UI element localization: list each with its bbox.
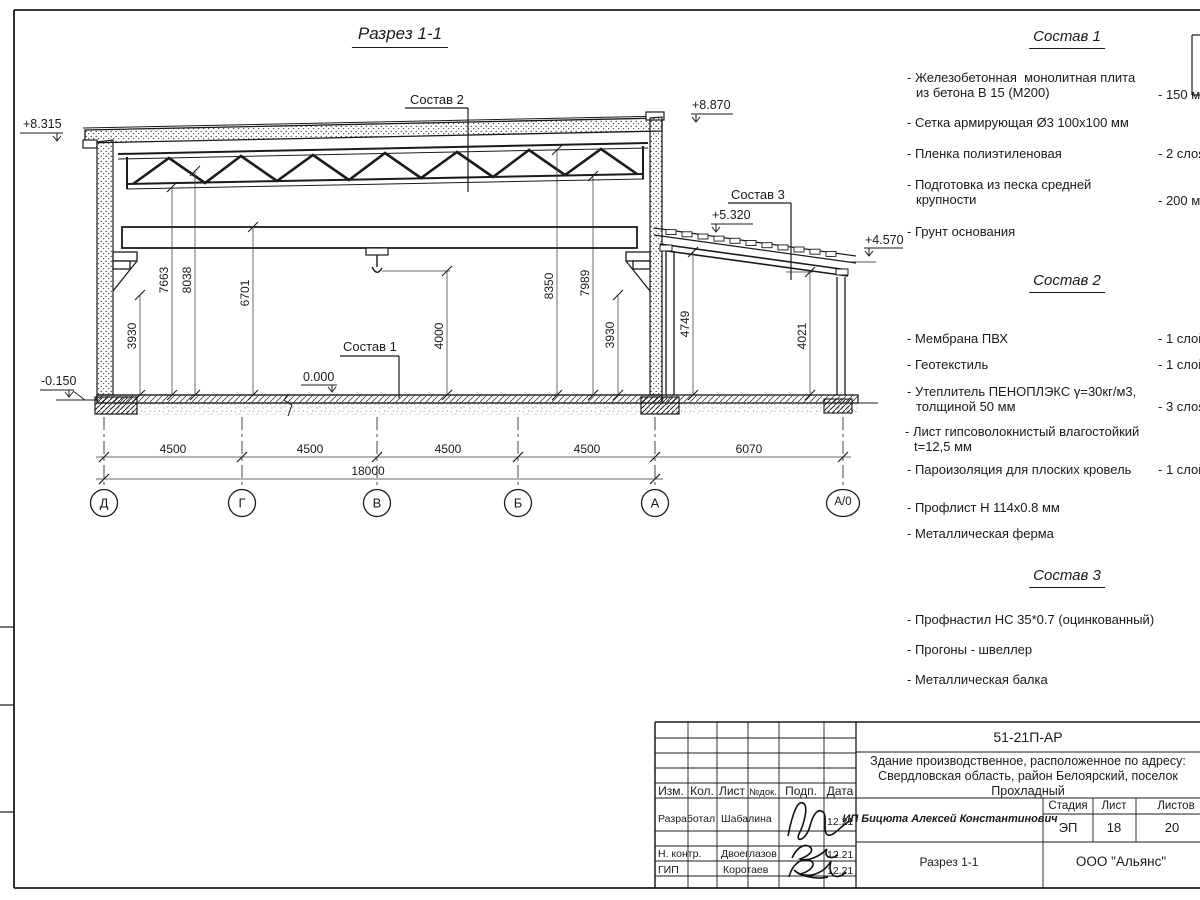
- composition-3-item: - Металлическая балка: [907, 672, 1176, 687]
- dim-span-4: 4500: [574, 442, 601, 456]
- composition-3-item: - Прогоны - швеллер: [907, 642, 1176, 657]
- dim-4000: 4000: [432, 323, 446, 350]
- composition-1-item: - Пленка полиэтиленовая: [907, 146, 1176, 161]
- composition-1-item: - Грунт основания: [907, 224, 1176, 239]
- column-header-izm: Изм.: [658, 784, 684, 798]
- role-developer: Разработал: [658, 813, 715, 825]
- column-header-ndok: №док.: [749, 787, 777, 798]
- axis-label-g: Г: [238, 495, 245, 510]
- composition-2-title: Состав 2: [1029, 272, 1105, 293]
- column-header-list: Лист: [719, 784, 745, 798]
- annex-purlins: [666, 230, 836, 257]
- client-name: ИП Бицюта Алексей Константинович: [842, 813, 1057, 826]
- composition-2-value: - 3 слоя: [1158, 399, 1200, 414]
- dim-3930-right: 3930: [603, 322, 617, 349]
- composition-2-item: - Мембрана ПВХ: [907, 331, 1176, 346]
- callout-sostav2: Состав 2: [410, 92, 464, 107]
- dim-8350: 8350: [542, 273, 556, 300]
- axis-label-b: Б: [514, 495, 523, 510]
- stage-value: ЭП: [1059, 820, 1078, 835]
- composition-2-value: - 1 слой: [1158, 357, 1200, 372]
- steel-truss: [118, 143, 648, 189]
- column-header-kol: Кол.: [690, 784, 714, 798]
- callout-sostav1: Состав 1: [343, 339, 397, 354]
- date-ncontrol: 12.21: [827, 849, 853, 861]
- axis-label-v: В: [373, 495, 382, 510]
- drawing-sheet: Разрез 1-1 Состав 2 Состав 3 Состав 1 +8…: [0, 0, 1200, 900]
- page-title: Разрез 1-1: [352, 24, 448, 48]
- role-ncontrol: Н. контр.: [658, 848, 701, 860]
- axis-label-a: А: [651, 495, 660, 510]
- bottom-dimensions: [91, 417, 860, 517]
- view-name: Разрез 1-1: [920, 855, 979, 869]
- elevation-annex-top: +5.320: [712, 208, 751, 223]
- sheets-label: Листов: [1157, 800, 1194, 814]
- composition-2-item: - Утеплитель ПЕНОПЛЭКС γ=30кг/м3, толщин…: [907, 384, 1176, 415]
- vertical-dim-ticks: [135, 145, 815, 400]
- name-developer: Шабалина: [721, 813, 772, 825]
- composition-1-item: - Сетка армирующая Ø3 100х100 мм: [907, 115, 1176, 130]
- dim-annex-span: 6070: [736, 442, 763, 456]
- composition-2-value: - 1 слой: [1158, 331, 1200, 346]
- composition-3-title: Состав 3: [1029, 567, 1105, 588]
- sheet-label: Лист: [1102, 800, 1127, 814]
- left-console: [113, 252, 137, 291]
- dim-span-3: 4500: [435, 442, 462, 456]
- elevation-annex-eave: +4.570: [865, 233, 904, 248]
- column-header-podp: Подп.: [785, 784, 817, 798]
- elevation-roof-right: +8.870: [692, 98, 731, 113]
- composition-2-item: - Геотекстиль: [907, 357, 1176, 372]
- sheets-total: 20: [1165, 820, 1179, 835]
- dim-3930-left: 3930: [125, 323, 139, 350]
- project-description-line2: Свердловская область, район Белоярский, …: [878, 769, 1178, 784]
- dim-7663: 7663: [157, 267, 171, 294]
- composition-1-item: - Подготовка из песка средней крупности: [907, 177, 1176, 208]
- composition-2-item: - Профлист Н 114х0.8 мм: [907, 500, 1176, 515]
- axis-label-a0: А/0: [834, 496, 851, 510]
- callout-sostav3: Состав 3: [731, 187, 785, 202]
- stage-label: Стадия: [1048, 800, 1087, 814]
- dim-8038: 8038: [180, 267, 194, 294]
- right-console: [626, 252, 650, 291]
- dim-span-1: 4500: [160, 442, 187, 456]
- name-gip: Коротаев: [723, 864, 768, 876]
- composition-2-item: - Лист гипсоволокнистый влагостойкий t=1…: [905, 424, 1194, 455]
- project-description-line1: Здание производственное, расположенное п…: [870, 754, 1186, 769]
- dim-span-2: 4500: [297, 442, 324, 456]
- elevation-floor-zero: 0.000: [303, 370, 334, 385]
- composition-1-item: - Железобетонная монолитная плита из бет…: [907, 70, 1176, 101]
- company-name: ООО "Альянс": [1076, 854, 1166, 870]
- composition-1-value: - 150 мм: [1158, 87, 1200, 102]
- sheet-number: 18: [1107, 820, 1121, 835]
- composition-2-item: - Пароизоляция для плоских кровель: [907, 462, 1176, 477]
- composition-1-value: - 200 мм: [1158, 193, 1200, 208]
- composition-2-value: - 1 слой: [1158, 462, 1200, 477]
- composition-2-item: - Металлическая ферма: [907, 526, 1176, 541]
- column-header-data: Дата: [827, 784, 854, 798]
- name-ncontrol: Двоеглазов: [721, 848, 777, 860]
- composition-3-item: - Профнастил НС 35*0.7 (оцинкованный): [907, 612, 1200, 627]
- elevation-roof-left: +8.315: [23, 117, 62, 132]
- role-gip: ГИП: [658, 864, 679, 876]
- project-description-line3: Прохладный: [991, 784, 1064, 799]
- dim-4749: 4749: [678, 311, 692, 338]
- axis-label-d: Д: [100, 495, 109, 510]
- dim-6701: 6701: [238, 280, 252, 307]
- crane-beam: [122, 227, 637, 272]
- main-building-section: [56, 112, 679, 416]
- dim-4021: 4021: [795, 323, 809, 350]
- date-gip: 12.21: [827, 865, 853, 877]
- elevation-grade: -0.150: [41, 374, 76, 389]
- floor-slab: [56, 391, 679, 416]
- dim-total: 18000: [351, 464, 384, 478]
- doc-number: 51-21П-АР: [993, 729, 1062, 746]
- dim-7989: 7989: [578, 270, 592, 297]
- composition-1-value: - 2 слоя: [1158, 146, 1200, 161]
- composition-1-title: Состав 1: [1029, 28, 1105, 49]
